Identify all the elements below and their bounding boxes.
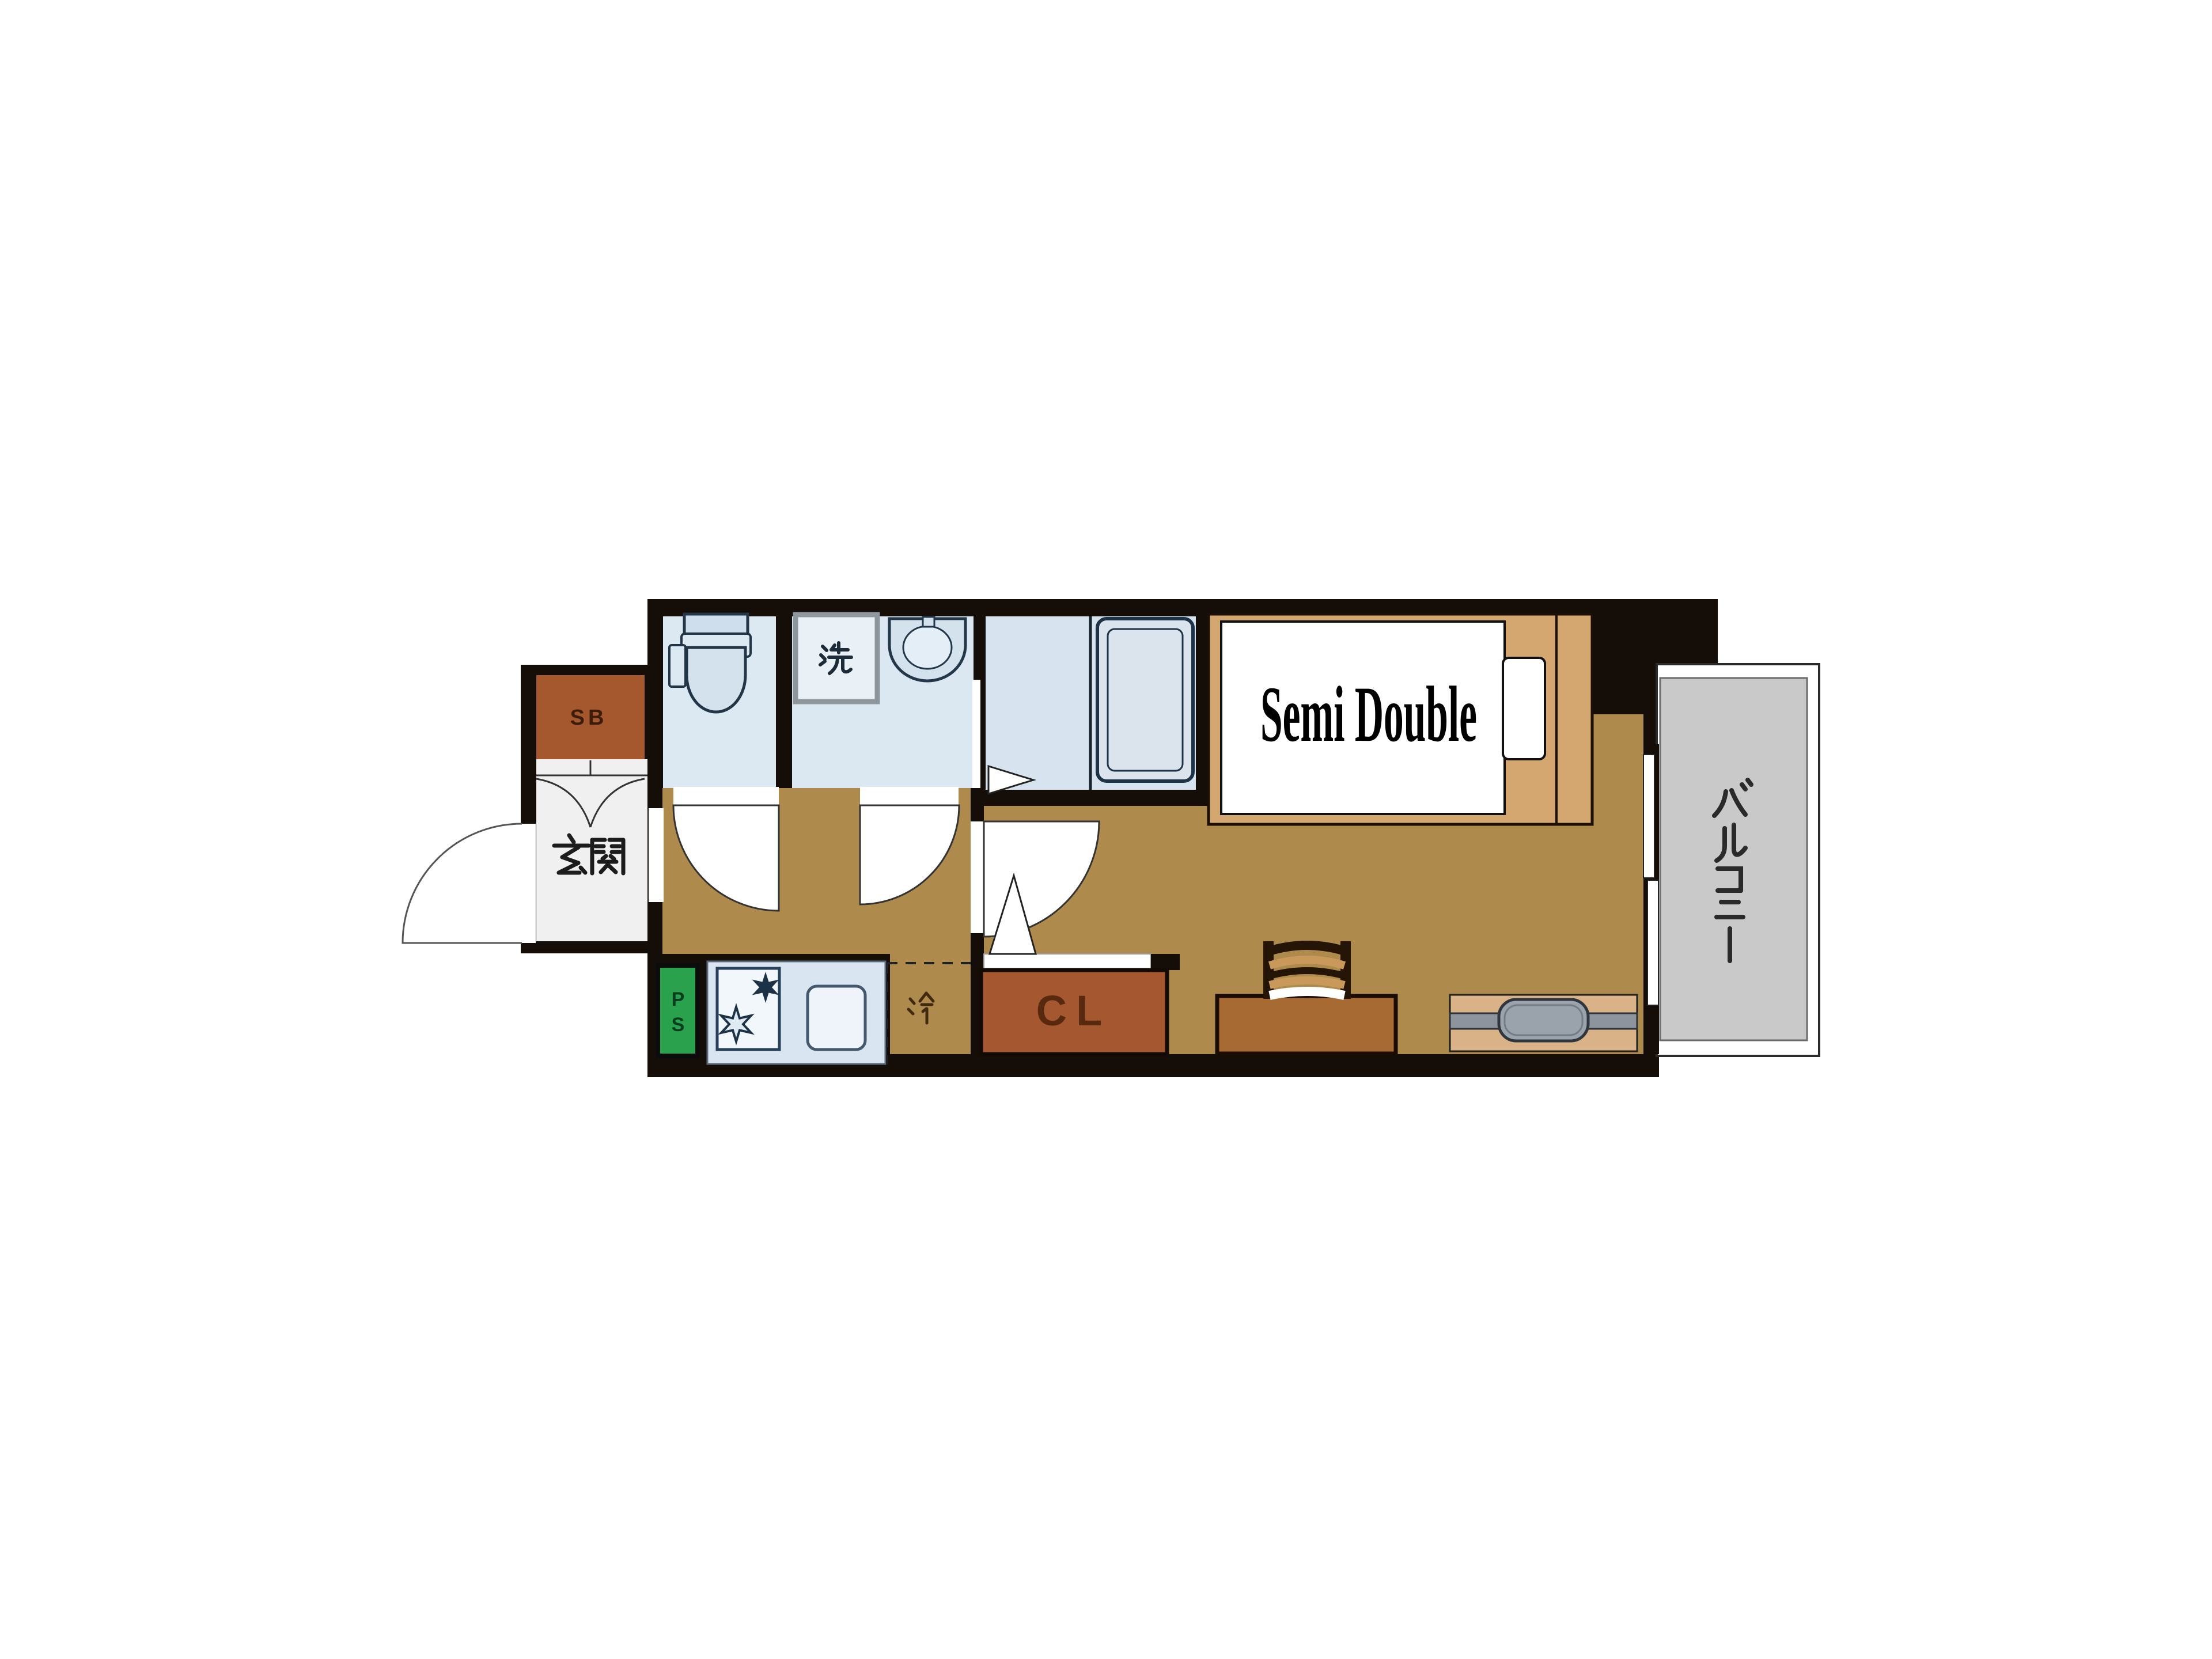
svg-text:S: S (672, 1014, 685, 1036)
svg-text:Semi Double: Semi Double (1260, 670, 1477, 758)
svg-text:P: P (672, 988, 685, 1010)
svg-text:SB: SB (570, 706, 608, 730)
svg-text:CL: CL (1036, 987, 1112, 1035)
